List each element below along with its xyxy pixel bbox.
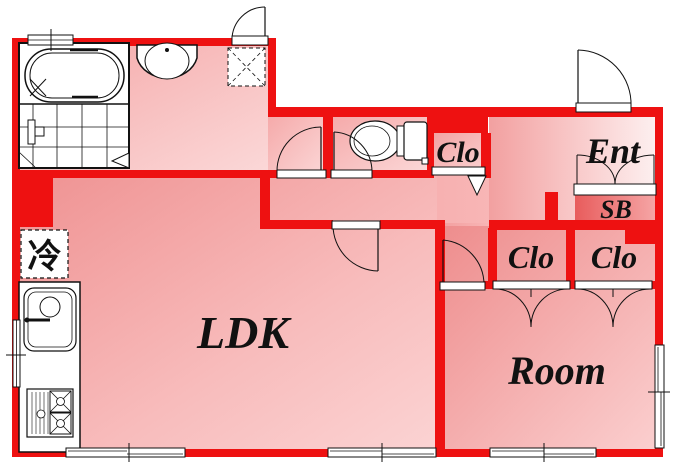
kitchen-counter bbox=[19, 282, 80, 452]
shower-mixer-icon bbox=[28, 120, 35, 144]
label-room: Room bbox=[507, 348, 606, 393]
label-closet-hall: Clo bbox=[436, 136, 479, 169]
label-refrigerator: 冷 bbox=[28, 237, 62, 277]
label-closet-right: Clo bbox=[591, 239, 637, 275]
bathtub-inner bbox=[30, 53, 119, 98]
wall-ldk-north-a bbox=[266, 220, 333, 229]
shower-knob-icon bbox=[35, 127, 44, 136]
sink-faucet-knob bbox=[25, 318, 30, 323]
washbasin-faucet bbox=[165, 48, 169, 52]
gas-stove-icon bbox=[27, 389, 73, 437]
wall-ent-south bbox=[489, 220, 663, 230]
label-entrance: Ent bbox=[585, 131, 641, 171]
wall-toilet-south bbox=[370, 170, 432, 178]
door-washroom-top bbox=[232, 7, 268, 45]
label-shoe-box: SB bbox=[600, 195, 632, 224]
wall-block-closet-north bbox=[427, 111, 488, 133]
wall-ent-stub bbox=[545, 192, 558, 222]
wall-closet-divider bbox=[566, 228, 575, 289]
sink-drain bbox=[40, 297, 60, 317]
wall-washroom-east bbox=[268, 38, 276, 115]
door-entrance bbox=[576, 50, 631, 112]
wall-toilet-west bbox=[323, 113, 333, 178]
label-ldk: LDK bbox=[196, 307, 292, 358]
bathroom bbox=[19, 43, 129, 168]
floor-plan: LDK Room Clo Clo Clo Ent SB 冷 bbox=[0, 0, 674, 470]
label-closet-left: Clo bbox=[508, 239, 554, 275]
toilet-icon bbox=[350, 121, 428, 164]
washing-machine-pan-icon bbox=[228, 48, 265, 86]
column-ldk-corner bbox=[16, 173, 53, 227]
wall-closet-left-west bbox=[488, 228, 497, 289]
floor-plan-canvas: LDK Room Clo Clo Clo Ent SB 冷 bbox=[0, 0, 674, 470]
wall-ldk-north-b bbox=[380, 220, 437, 229]
